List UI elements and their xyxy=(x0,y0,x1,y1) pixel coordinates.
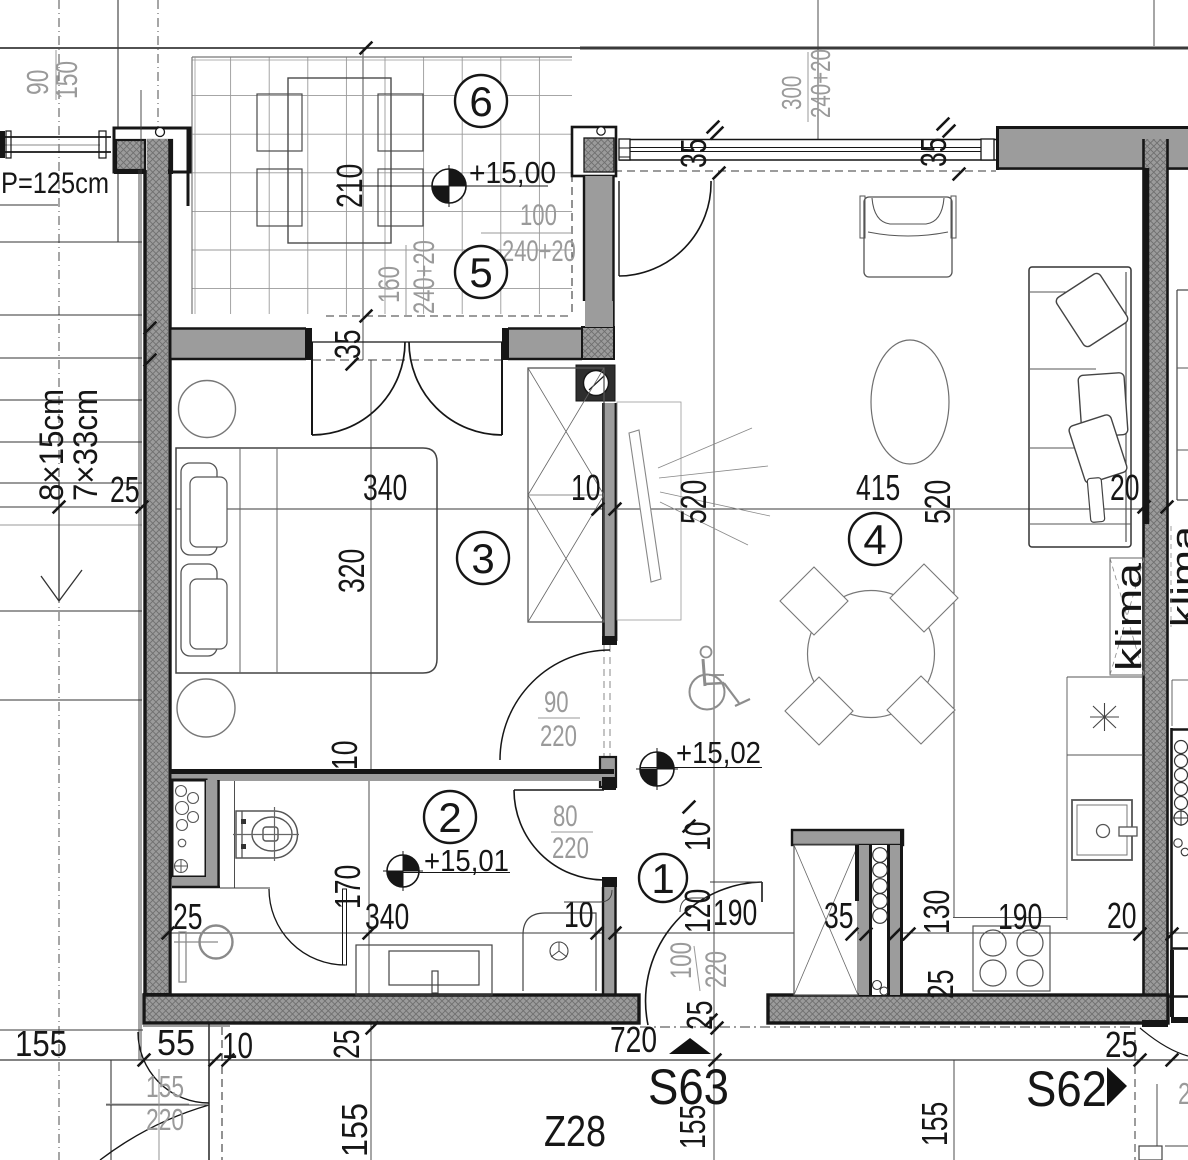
svg-text:320: 320 xyxy=(331,549,372,593)
svg-text:25: 25 xyxy=(326,1030,367,1060)
svg-text:300: 300 xyxy=(776,76,807,110)
svg-text:25: 25 xyxy=(920,970,961,1000)
svg-text:10: 10 xyxy=(324,741,365,771)
svg-text:20: 20 xyxy=(1110,467,1140,508)
svg-text:340: 340 xyxy=(363,467,407,508)
svg-text:100: 100 xyxy=(665,942,698,979)
svg-text:S62: S62 xyxy=(1026,1061,1107,1117)
svg-text:P=125cm: P=125cm xyxy=(1,167,109,200)
svg-text:35: 35 xyxy=(824,895,854,936)
svg-text:80: 80 xyxy=(553,800,578,833)
svg-text:90: 90 xyxy=(544,686,569,719)
svg-text:10: 10 xyxy=(564,894,594,935)
svg-text:170: 170 xyxy=(327,865,368,909)
svg-text:4: 4 xyxy=(863,516,886,563)
svg-text:240+20: 240+20 xyxy=(502,235,576,268)
svg-text:7×33cm: 7×33cm xyxy=(67,389,105,501)
svg-text:25: 25 xyxy=(110,469,140,510)
svg-text:6: 6 xyxy=(469,78,492,125)
svg-text:+15,02: +15,02 xyxy=(676,735,761,770)
svg-text:155: 155 xyxy=(914,1102,955,1146)
svg-text:155: 155 xyxy=(15,1023,67,1064)
svg-text:25: 25 xyxy=(679,1001,720,1031)
svg-text:2: 2 xyxy=(1178,1076,1188,1111)
svg-text:3: 3 xyxy=(471,535,494,582)
svg-text:220: 220 xyxy=(540,720,577,753)
svg-text:klima: klima xyxy=(1163,525,1188,627)
svg-text:415: 415 xyxy=(856,467,900,508)
svg-text:190: 190 xyxy=(998,896,1042,937)
svg-text:Z28: Z28 xyxy=(544,1107,606,1156)
svg-text:25: 25 xyxy=(1105,1024,1138,1065)
svg-text:155: 155 xyxy=(334,1103,375,1157)
svg-text:35: 35 xyxy=(673,139,714,169)
svg-text:35: 35 xyxy=(327,330,368,360)
svg-text:klima: klima xyxy=(1108,562,1149,671)
svg-text:20: 20 xyxy=(1107,895,1137,936)
svg-text:720: 720 xyxy=(610,1019,657,1060)
svg-text:+15,00: +15,00 xyxy=(469,155,556,190)
svg-text:240+20: 240+20 xyxy=(408,240,441,314)
svg-text:8×15cm: 8×15cm xyxy=(33,389,71,501)
svg-text:55: 55 xyxy=(157,1022,195,1063)
svg-text:35: 35 xyxy=(913,138,954,168)
svg-text:190: 190 xyxy=(713,892,757,933)
svg-text:210: 210 xyxy=(329,164,370,208)
svg-text:155: 155 xyxy=(672,1105,713,1149)
svg-text:220: 220 xyxy=(700,951,733,988)
svg-text:10: 10 xyxy=(571,467,601,508)
svg-text:25: 25 xyxy=(173,896,203,937)
svg-text:+15,01: +15,01 xyxy=(424,843,509,878)
svg-text:520: 520 xyxy=(917,480,958,524)
svg-text:130: 130 xyxy=(916,890,957,934)
svg-text:160: 160 xyxy=(373,266,406,303)
svg-text:220: 220 xyxy=(146,1102,184,1137)
svg-text:220: 220 xyxy=(552,832,589,865)
svg-text:120: 120 xyxy=(677,889,718,933)
svg-text:520: 520 xyxy=(673,480,714,524)
svg-text:5: 5 xyxy=(469,249,492,296)
svg-text:10: 10 xyxy=(677,822,718,852)
svg-text:155: 155 xyxy=(146,1069,184,1104)
svg-text:1: 1 xyxy=(651,855,674,902)
svg-text:2: 2 xyxy=(438,794,461,841)
svg-text:240+20: 240+20 xyxy=(805,49,836,118)
svg-text:150: 150 xyxy=(49,61,84,99)
svg-text:100: 100 xyxy=(520,199,557,232)
